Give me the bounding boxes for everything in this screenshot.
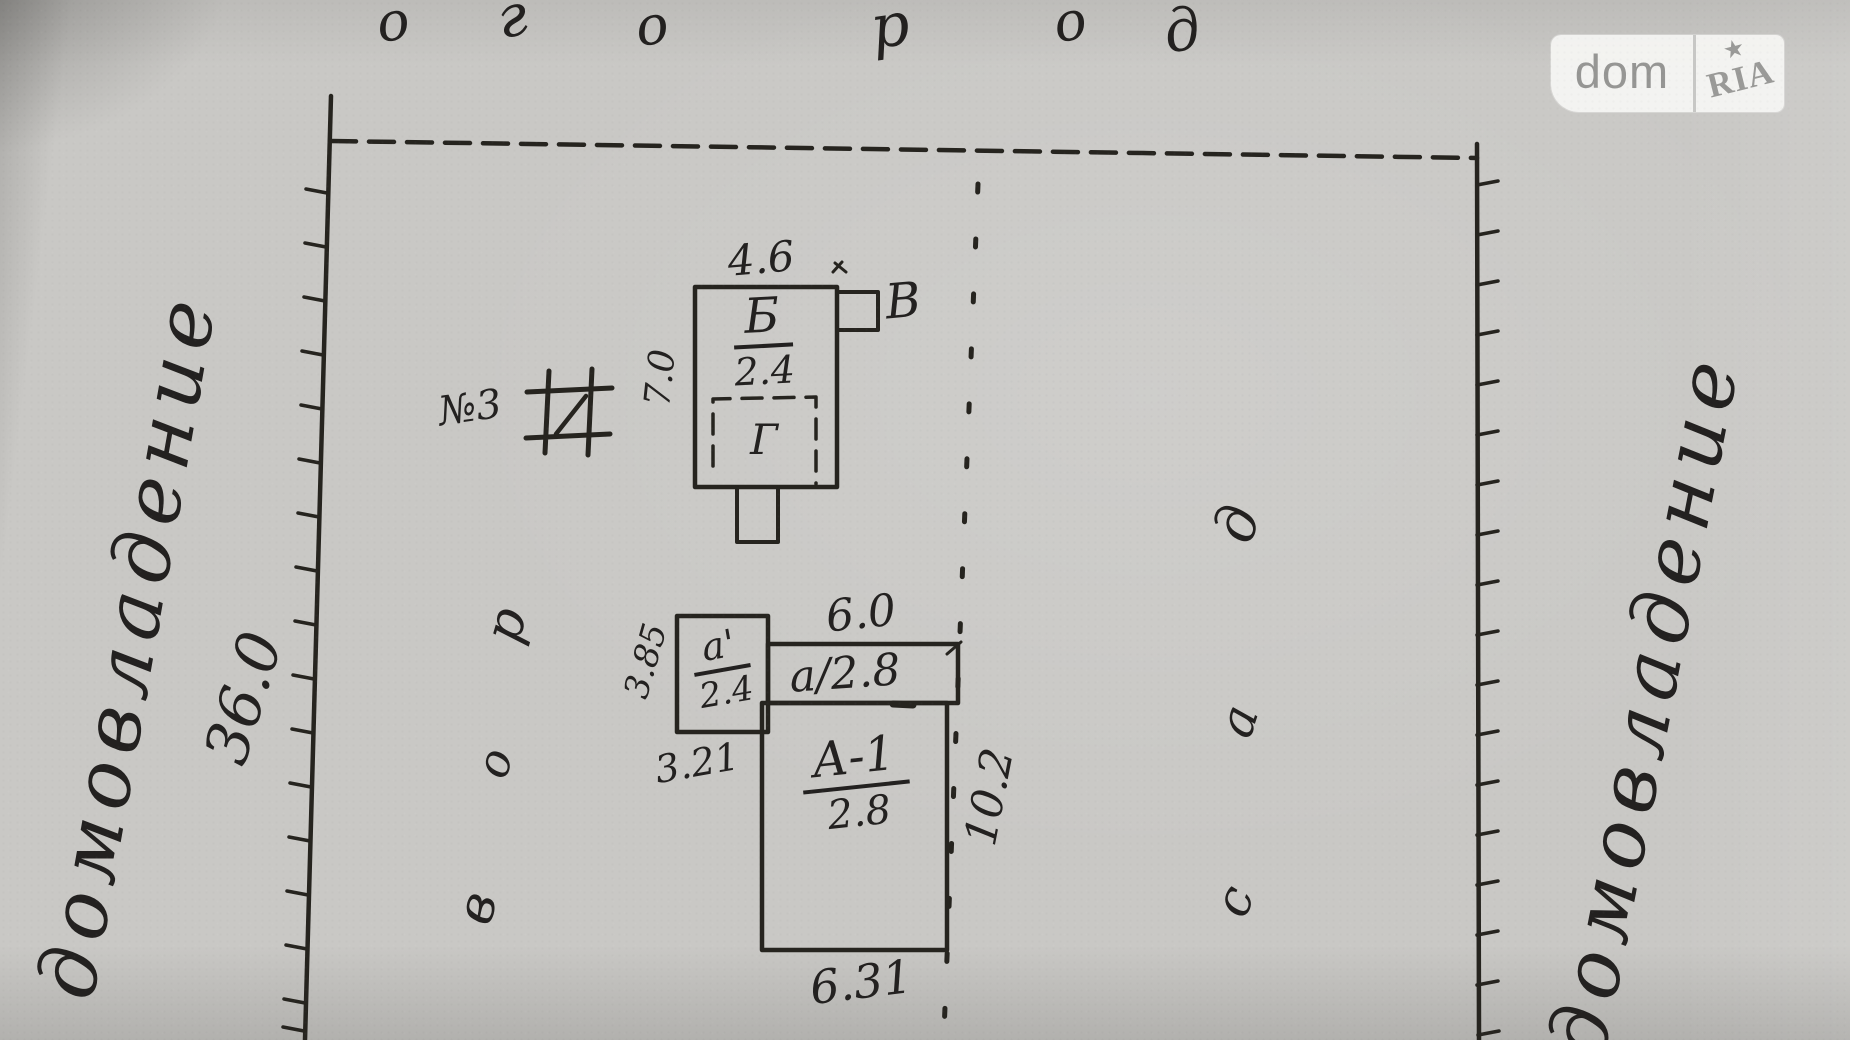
building-b-letter: Б — [731, 289, 793, 350]
inner-g-label: Г — [750, 419, 778, 461]
porch-label: а/2.8 — [788, 648, 902, 700]
annex-a-letter: а' — [686, 620, 751, 677]
dim-porch-width: 6.0 — [824, 588, 898, 639]
dim-a-width: 6.31 — [807, 953, 914, 1011]
scanned-site-plan: о г о р о д домовладение домовладение 36… — [0, 0, 1850, 1040]
ria-logo-text: RIA — [1703, 51, 1778, 106]
top-word-letter-o1: о — [373, 0, 413, 51]
domria-watermark[interactable]: dom ★ RIA — [1551, 35, 1784, 112]
dim-b-depth: 7.0 — [640, 348, 682, 409]
dim-b-width: 4.6 — [726, 235, 796, 283]
building-b-label: Б 2.4 — [730, 288, 796, 391]
building-a-letter: А-1 — [797, 726, 910, 795]
top-word-letter-o2: о — [632, 0, 672, 55]
well-marker-symbol — [526, 369, 612, 455]
building-a-label: А-1 2.8 — [797, 726, 914, 839]
annex-v-label: В — [883, 276, 922, 327]
dom-logo-text: dom — [1551, 35, 1693, 112]
building-b-area: 2.4 — [733, 346, 796, 391]
well-number-label: №3 — [436, 384, 504, 432]
ria-logo: ★ RIA — [1696, 35, 1784, 112]
top-word-letter-r: р — [867, 0, 913, 58]
